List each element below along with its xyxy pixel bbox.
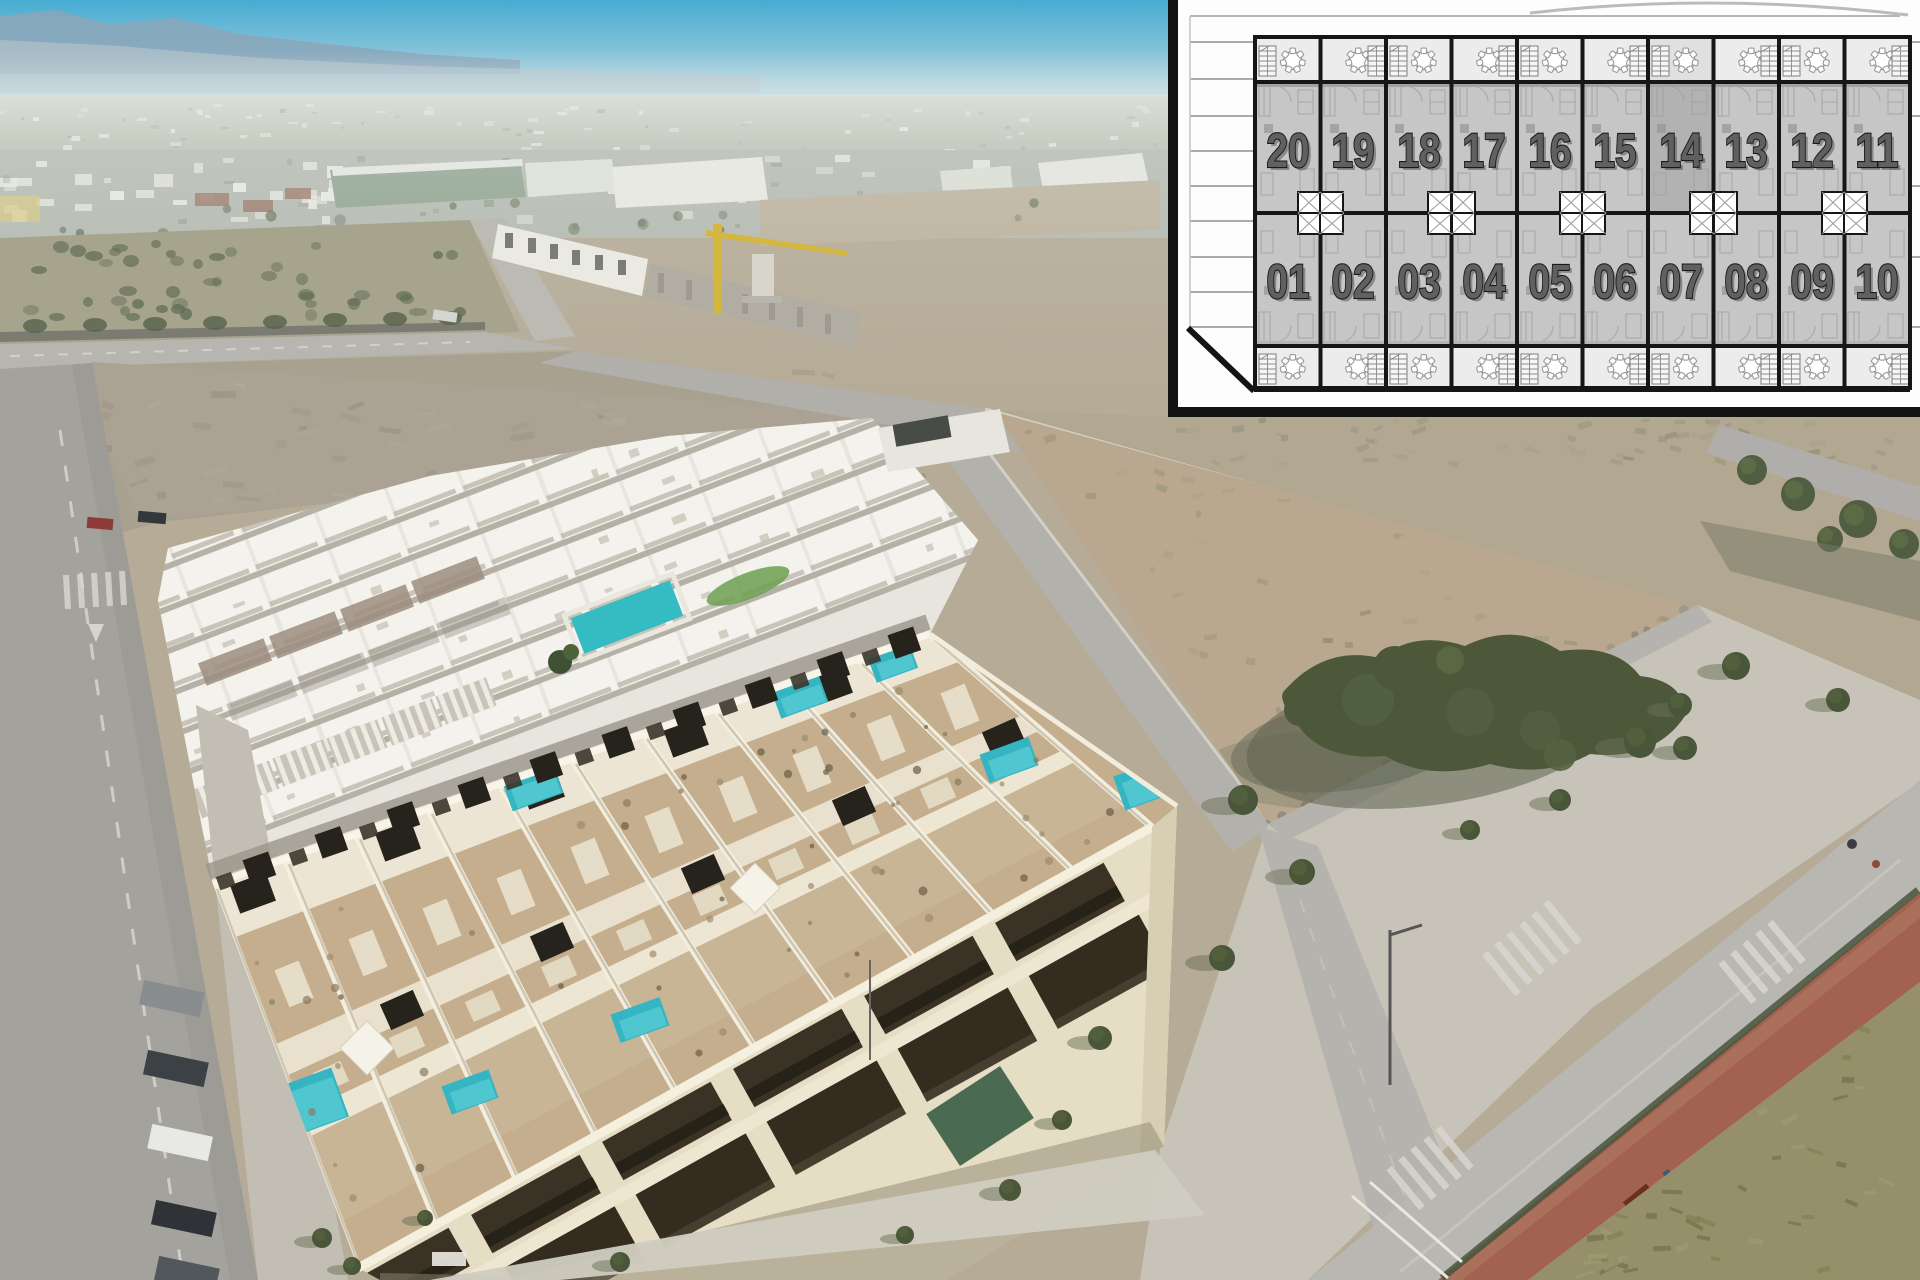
svg-text:03: 03 (1398, 256, 1441, 309)
svg-text:01: 01 (1267, 256, 1310, 309)
svg-text:13: 13 (1725, 125, 1768, 178)
svg-text:05: 05 (1529, 256, 1572, 309)
svg-text:11: 11 (1856, 125, 1899, 178)
svg-text:08: 08 (1725, 256, 1768, 309)
svg-text:18: 18 (1398, 125, 1441, 178)
svg-text:14: 14 (1660, 125, 1703, 178)
svg-text:19: 19 (1332, 125, 1375, 178)
svg-text:09: 09 (1791, 256, 1834, 309)
svg-text:02: 02 (1332, 256, 1375, 309)
svg-text:06: 06 (1594, 256, 1637, 309)
svg-text:15: 15 (1594, 125, 1637, 178)
svg-text:20: 20 (1267, 125, 1310, 178)
svg-text:12: 12 (1791, 125, 1834, 178)
svg-text:07: 07 (1660, 256, 1703, 309)
svg-text:16: 16 (1529, 125, 1572, 178)
svg-text:04: 04 (1463, 256, 1506, 309)
svg-text:17: 17 (1463, 125, 1506, 178)
svg-text:10: 10 (1856, 256, 1899, 309)
